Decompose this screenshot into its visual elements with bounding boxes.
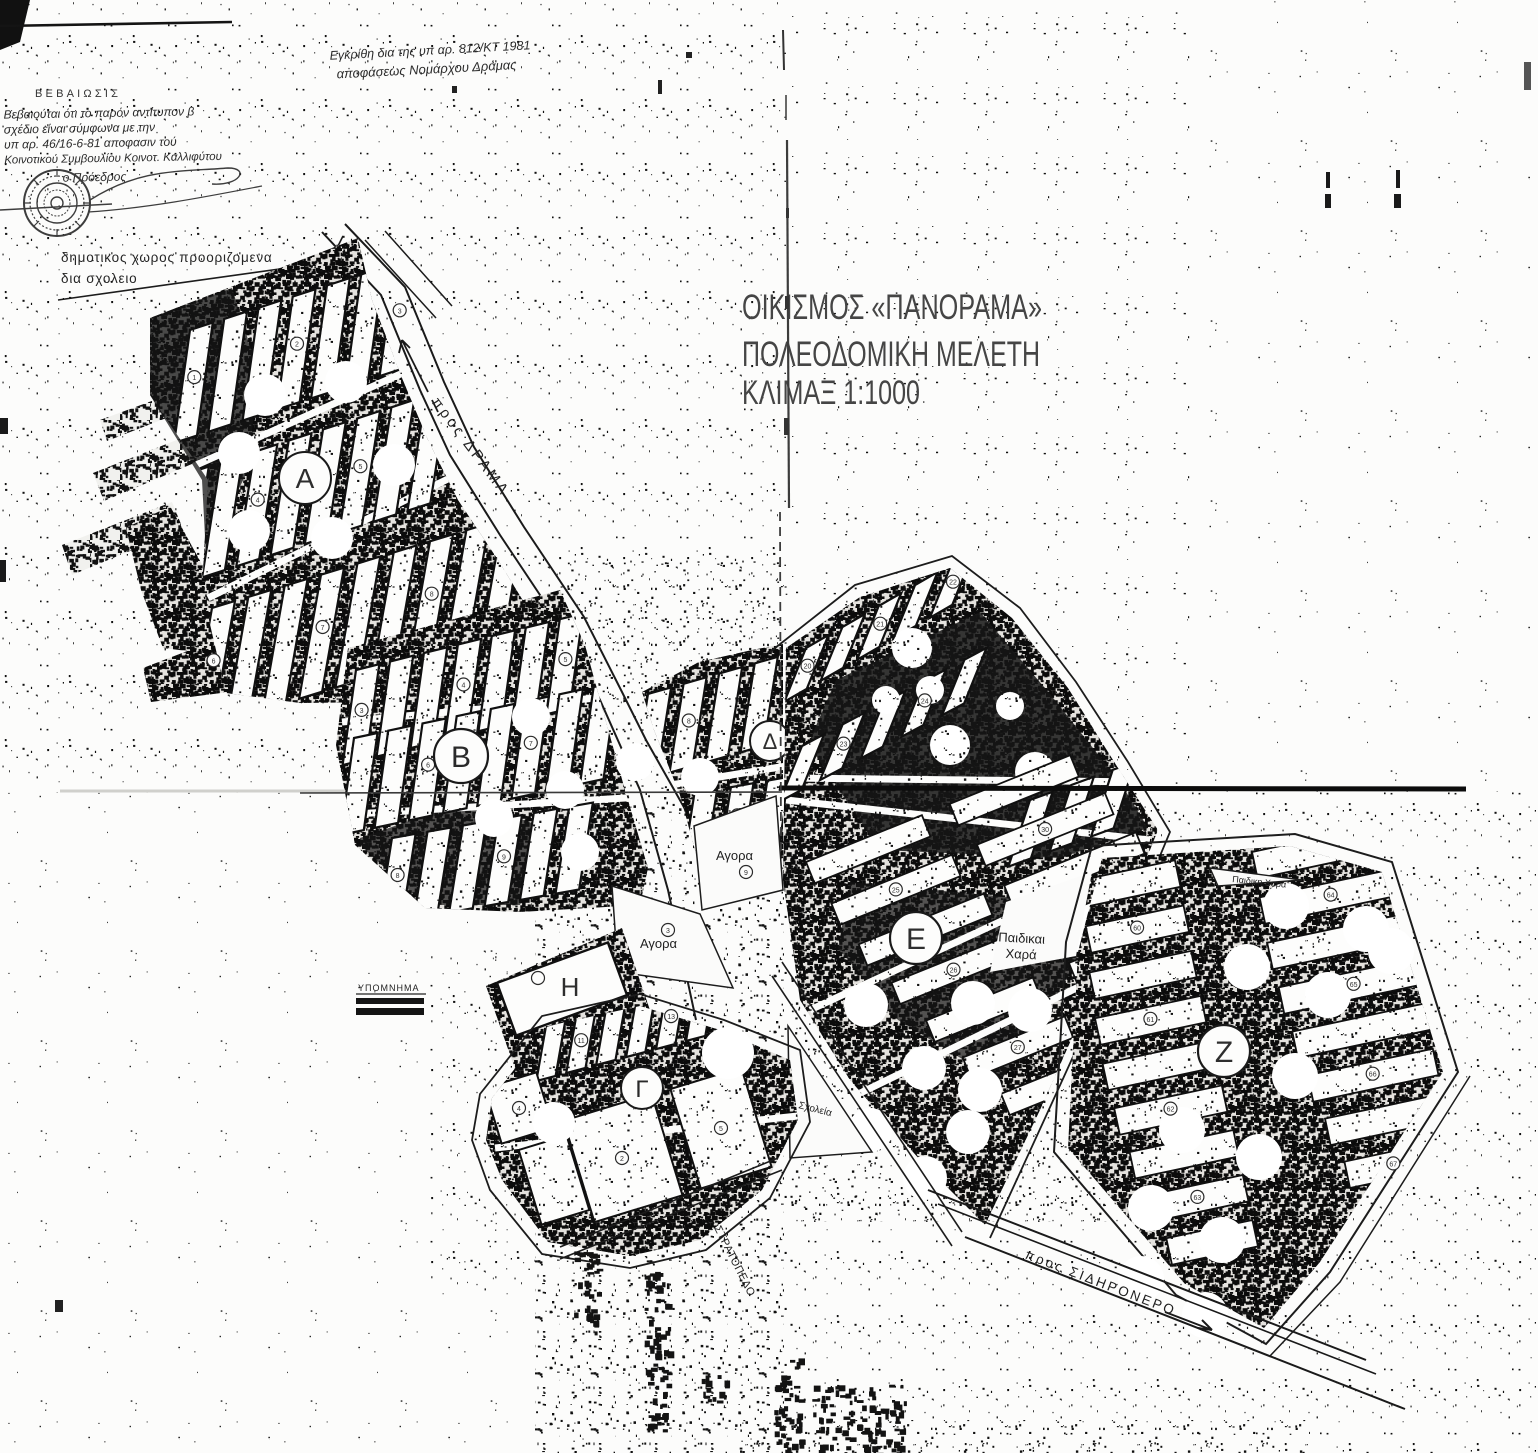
- svg-text:δημοτικος χωρος προοριζομενα: δημοτικος χωρος προοριζομενα: [61, 250, 273, 265]
- svg-text:26: 26: [950, 968, 958, 975]
- svg-text:3: 3: [398, 308, 402, 315]
- svg-text:Γ: Γ: [635, 1076, 648, 1103]
- svg-text:8: 8: [430, 592, 434, 599]
- svg-text:8: 8: [396, 873, 400, 880]
- svg-text:64: 64: [1327, 893, 1335, 900]
- svg-text:2: 2: [620, 1156, 624, 1163]
- svg-text:60: 60: [1133, 926, 1141, 933]
- svg-text:Αγορα: Αγορα: [716, 848, 754, 863]
- svg-text:A: A: [296, 463, 315, 494]
- svg-text:27: 27: [1014, 1045, 1022, 1052]
- svg-text:E: E: [906, 923, 926, 956]
- svg-text:Z: Z: [1215, 1036, 1233, 1069]
- svg-text:23: 23: [840, 742, 848, 749]
- svg-text:δια σχολειο: δια σχολειο: [61, 271, 137, 286]
- svg-text:ο Πρόεδρος: ο Πρόεδρος: [63, 170, 127, 185]
- svg-text:ΠΟΛΕΟΔΟΜΙΚΗ ΜΕΛΕΤΗ: ΠΟΛΕΟΔΟΜΙΚΗ ΜΕΛΕΤΗ: [742, 335, 1040, 374]
- svg-text:Αγορα: Αγορα: [640, 936, 678, 951]
- svg-text:20: 20: [804, 664, 812, 671]
- svg-text:13: 13: [667, 1014, 675, 1021]
- svg-text:ΚΛΙΜΑΞ 1:1000: ΚΛΙΜΑΞ 1:1000: [742, 374, 920, 412]
- svg-text:Παιδικαι: Παιδικαι: [998, 929, 1045, 946]
- svg-text:4: 4: [517, 1106, 521, 1113]
- svg-text:5: 5: [358, 464, 362, 471]
- svg-text:1: 1: [192, 375, 196, 382]
- svg-text:61: 61: [1147, 1017, 1155, 1024]
- svg-text:6: 6: [212, 658, 216, 665]
- svg-text:4: 4: [256, 498, 260, 505]
- svg-text:Χαρά: Χαρά: [1005, 946, 1037, 963]
- svg-text:62: 62: [1167, 1107, 1175, 1114]
- svg-text:5: 5: [563, 657, 567, 664]
- svg-text:21: 21: [876, 622, 884, 629]
- svg-text:22: 22: [949, 580, 957, 587]
- svg-text:3: 3: [666, 928, 670, 935]
- svg-text:9: 9: [502, 854, 506, 861]
- svg-text:8: 8: [687, 719, 691, 726]
- svg-text:63: 63: [1194, 1195, 1202, 1202]
- svg-text:Δ: Δ: [763, 729, 778, 754]
- svg-text:H: H: [561, 972, 580, 1002]
- svg-text:σχέδιο είναι σύμφωνα με την: σχέδιο είναι σύμφωνα με την: [4, 120, 156, 137]
- svg-text:11: 11: [578, 1038, 585, 1045]
- svg-text:6: 6: [426, 763, 430, 770]
- svg-text:3: 3: [360, 708, 364, 715]
- svg-text:9: 9: [744, 870, 748, 877]
- svg-text:66: 66: [1369, 1072, 1377, 1079]
- svg-text:B: B: [451, 741, 471, 774]
- svg-text:67: 67: [1389, 1161, 1397, 1168]
- svg-text:4: 4: [462, 683, 466, 690]
- svg-text:ΥΠΟΜΝΗΜΑ: ΥΠΟΜΝΗΜΑ: [358, 983, 420, 993]
- svg-text:7: 7: [529, 741, 533, 748]
- svg-text:2: 2: [295, 342, 299, 349]
- svg-text:5: 5: [719, 1126, 723, 1133]
- svg-text:30: 30: [1041, 827, 1049, 834]
- svg-text:65: 65: [1350, 982, 1358, 989]
- svg-text:25: 25: [892, 887, 900, 894]
- svg-text:ΒΕΒΑΙΩΣΙΣ: ΒΕΒΑΙΩΣΙΣ: [35, 88, 121, 100]
- svg-text:7: 7: [321, 625, 325, 632]
- svg-text:24: 24: [921, 698, 929, 705]
